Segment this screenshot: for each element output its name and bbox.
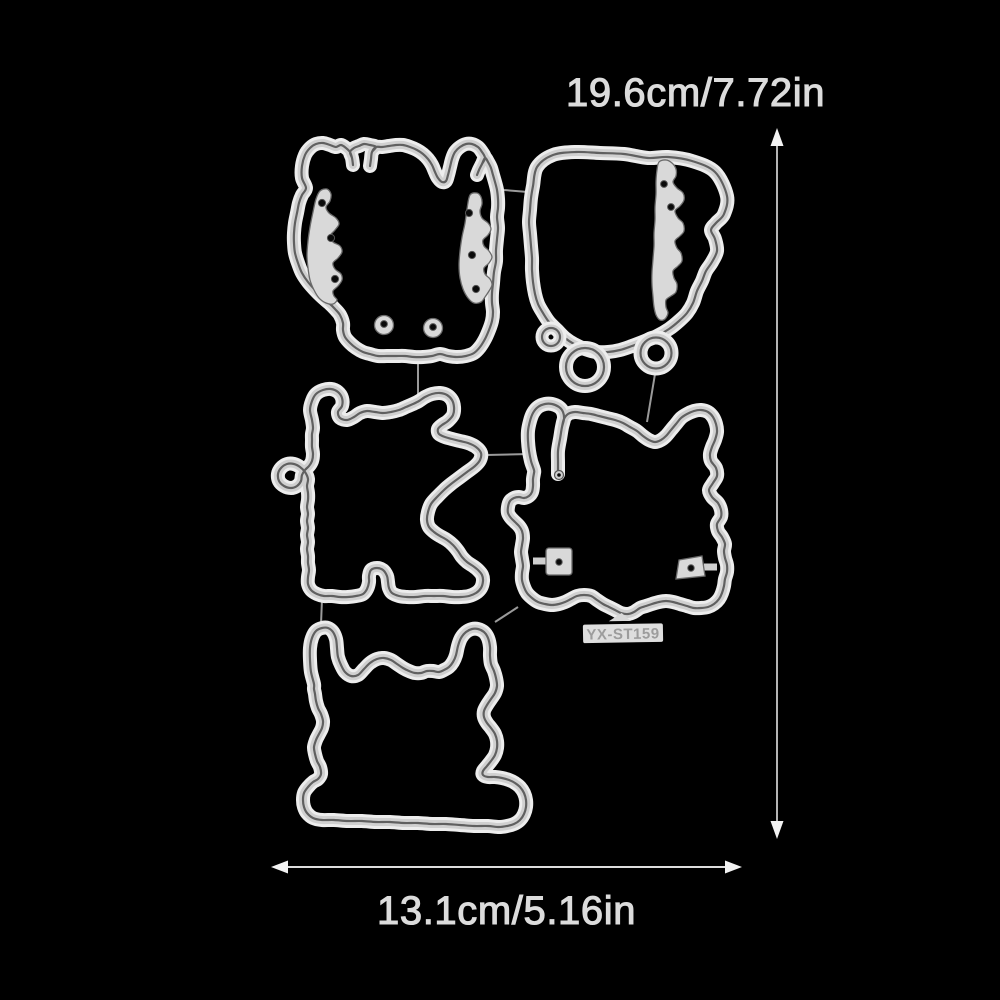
svg-text:YX-ST159: YX-ST159 [586, 625, 659, 643]
